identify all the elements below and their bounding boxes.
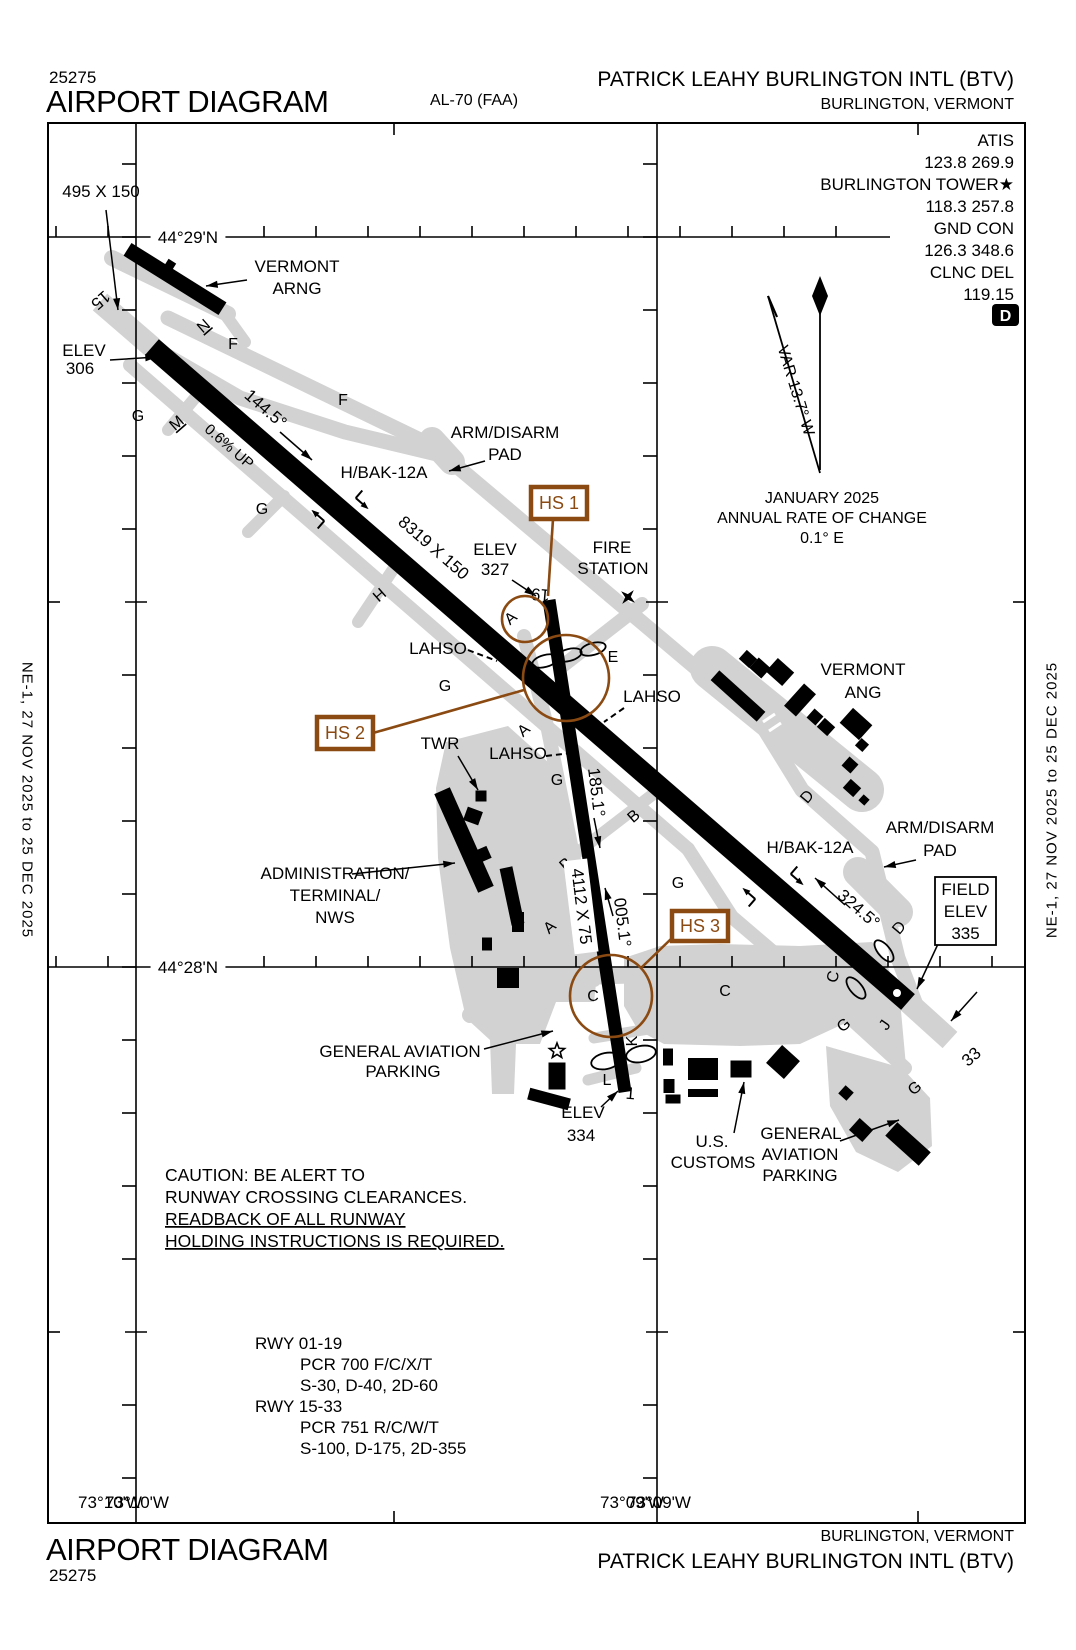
map-label: L bbox=[603, 1072, 612, 1089]
field-elevation-line: ELEV bbox=[944, 902, 988, 921]
variation-note: JANUARY 2025 bbox=[765, 490, 879, 507]
map-label: PARKING bbox=[762, 1166, 837, 1185]
map-label: 327 bbox=[481, 560, 509, 579]
map-label: NWS bbox=[315, 908, 355, 927]
comm-frequency-line: CLNC DEL bbox=[930, 263, 1014, 282]
map-label: CUSTOMS bbox=[671, 1153, 756, 1172]
map-label: GENERAL bbox=[760, 1124, 841, 1143]
map-label: G bbox=[672, 875, 684, 892]
building bbox=[663, 1049, 673, 1066]
comm-frequency-line: 126.3 348.6 bbox=[924, 241, 1014, 260]
map-label: RUNWAY CROSSING CLEARANCES. bbox=[165, 1187, 467, 1207]
map-label: K bbox=[624, 1035, 641, 1046]
taxiway bbox=[432, 440, 452, 462]
building bbox=[855, 738, 869, 752]
leader-arrow-head bbox=[541, 1030, 553, 1037]
map-label: GENERAL AVIATION bbox=[319, 1042, 480, 1061]
building bbox=[664, 1079, 675, 1093]
map-label: ARNG bbox=[272, 279, 321, 298]
hotspot-leader bbox=[548, 519, 553, 596]
airport-diagram-page: 25275 AIRPORT DIAGRAM AL-70 (FAA) PATRIC… bbox=[0, 0, 1076, 1650]
map-label: U.S. bbox=[695, 1132, 728, 1151]
building bbox=[731, 1061, 752, 1078]
map-label: C bbox=[719, 983, 731, 1000]
comm-frequency-line: GND CON bbox=[934, 219, 1014, 238]
building bbox=[766, 658, 794, 686]
map-label: C bbox=[587, 988, 599, 1005]
map-label: G bbox=[551, 772, 563, 789]
map-label: ARM/DISARM bbox=[451, 423, 560, 442]
longitude-label: 73°10'W bbox=[78, 1493, 142, 1512]
variation-note: ANNUAL RATE OF CHANGE bbox=[717, 510, 927, 527]
building bbox=[766, 1045, 800, 1079]
map-label: ARM/DISARM bbox=[886, 818, 995, 837]
map-label: RWY 01-19 bbox=[255, 1334, 342, 1353]
field-elevation-line: 335 bbox=[951, 924, 979, 943]
map-label: FIRE bbox=[593, 538, 632, 557]
hotspot-box-label: HS 1 bbox=[539, 493, 579, 513]
map-label: 334 bbox=[567, 1126, 595, 1145]
map-label: 495 X 150 bbox=[62, 182, 140, 201]
building bbox=[497, 968, 519, 988]
map-label: VERMONT bbox=[821, 660, 906, 679]
map-label: G bbox=[256, 501, 268, 518]
map-label: 005.1° bbox=[610, 897, 635, 948]
building bbox=[476, 791, 487, 802]
comm-frequency-line: 118.3 257.8 bbox=[925, 197, 1014, 216]
leader-arrow-head bbox=[884, 861, 896, 868]
comm-frequency-line: 119.15 bbox=[963, 285, 1014, 304]
map-label: 306 bbox=[66, 359, 94, 378]
map-label: H/BAK-12A bbox=[767, 838, 855, 857]
arresting-gear-icon bbox=[736, 886, 757, 907]
map-label: TWR bbox=[421, 734, 460, 753]
map-label: PARKING bbox=[365, 1062, 440, 1081]
leader-arrow-head bbox=[917, 977, 925, 989]
map-label: CAUTION: BE ALERT TO bbox=[165, 1165, 365, 1185]
arresting-gear-icon bbox=[789, 866, 810, 887]
comm-frequency-line: 123.8 269.9 bbox=[924, 153, 1014, 172]
variation-note: 0.1° E bbox=[800, 530, 844, 547]
map-label: E bbox=[608, 649, 619, 666]
map-label: LAHSO bbox=[409, 639, 467, 658]
building bbox=[666, 1095, 681, 1104]
map-label: PCR 751 R/C/W/T bbox=[300, 1418, 439, 1437]
hotspot-leader bbox=[373, 690, 524, 733]
map-label: PAD bbox=[488, 445, 522, 464]
leader-arrow-head bbox=[206, 281, 218, 288]
building bbox=[549, 1063, 566, 1090]
map-label: AVIATION bbox=[762, 1145, 839, 1164]
variation-label: VAR 13.7° W bbox=[774, 344, 818, 439]
map-label: F bbox=[338, 392, 348, 409]
building bbox=[688, 1089, 718, 1097]
map-label: RWY 15-33 bbox=[255, 1397, 342, 1416]
latitude-label: 44°29'N bbox=[158, 228, 218, 247]
map-label: PAD bbox=[923, 841, 957, 860]
map-label: READBACK OF ALL RUNWAY bbox=[165, 1209, 406, 1229]
map-label: S-30, D-40, 2D-60 bbox=[300, 1376, 438, 1395]
map-label: LAHSO bbox=[489, 744, 547, 763]
runway-end-dot bbox=[893, 989, 901, 997]
airport-diagram-chart: 44°29'N44°28'N73°10'W73°09'W495 X 150VER… bbox=[0, 0, 1076, 1650]
beacon-star-icon bbox=[549, 1043, 564, 1057]
map-label: G bbox=[132, 408, 144, 425]
building bbox=[482, 938, 492, 951]
map-label: PCR 700 F/C/X/T bbox=[300, 1355, 432, 1374]
map-label: 1 bbox=[625, 1084, 636, 1104]
arresting-gear-icon bbox=[354, 490, 375, 511]
lahso-dash bbox=[604, 708, 624, 722]
map-label: ELEV bbox=[473, 540, 517, 559]
stopway bbox=[100, 302, 152, 347]
true-north-arrowhead bbox=[812, 276, 828, 316]
map-label: S-100, D-175, 2D-355 bbox=[300, 1439, 466, 1458]
map-label: G bbox=[439, 678, 451, 695]
comm-frequency-line: ATIS bbox=[977, 131, 1014, 150]
latitude-label: 44°28'N bbox=[158, 958, 218, 977]
map-label: HOLDING INSTRUCTIONS IS REQUIRED. bbox=[165, 1231, 504, 1251]
map-label: F bbox=[228, 336, 238, 353]
building bbox=[840, 708, 873, 740]
map-label: STATION bbox=[577, 559, 648, 578]
class-d-symbol-label: D bbox=[1000, 308, 1012, 325]
comm-frequency-line: BURLINGTON TOWER★ bbox=[820, 175, 1014, 194]
longitude-label: 73°09'W bbox=[600, 1493, 664, 1512]
map-label: TERMINAL/ bbox=[290, 886, 381, 905]
map-label: ELEV bbox=[561, 1103, 605, 1122]
map-label: ANG bbox=[845, 683, 882, 702]
hotspot-box-label: HS 3 bbox=[680, 916, 720, 936]
map-label: ELEV bbox=[62, 341, 106, 360]
building bbox=[512, 912, 524, 932]
map-label: VERMONT bbox=[255, 257, 340, 276]
building bbox=[688, 1058, 718, 1080]
map-label: ADMINISTRATION/ bbox=[261, 864, 410, 883]
hotspot-box-label: HS 2 bbox=[325, 723, 365, 743]
map-label: H/BAK-12A bbox=[341, 463, 429, 482]
field-elevation-line: FIELD bbox=[941, 880, 989, 899]
map-label: LAHSO bbox=[623, 687, 681, 706]
map-label: 33 bbox=[958, 1043, 985, 1070]
